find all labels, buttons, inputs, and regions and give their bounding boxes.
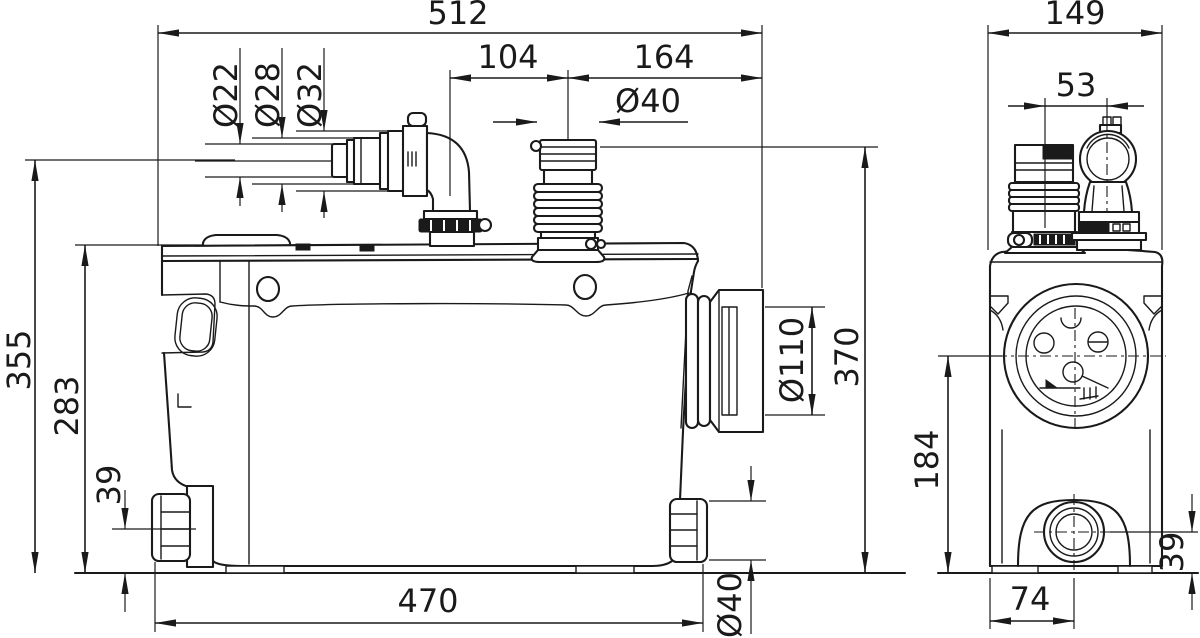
lid-clip [296,244,310,250]
foot [226,566,284,573]
tank-body [162,235,698,573]
dimension-discharge-height: 184 [908,356,1002,573]
dimension-side-port-height: 39 [1110,494,1198,610]
hose-clip [531,141,541,151]
dimension-discharge-diameter: Ø110 [765,307,825,415]
dim-label-inlet-dia-28: Ø28 [249,62,287,128]
dim-label-overall-depth: 149 [1044,0,1105,32]
dimension-outlet-diameter: Ø40 [493,82,688,122]
lid-screw-hole-left [257,277,279,301]
side-view: 149 53 184 39 74 [908,0,1198,629]
lid-screw-hole-right [574,275,596,299]
front-view: 512 104 164 Ø40 Ø22 [0,0,905,638]
dim-label-inlet-dia-32: Ø32 [291,62,329,128]
elbow-top-nub [408,113,426,126]
side-inlet-right [670,499,707,562]
dim-label-left-port-height: 39 [90,465,128,506]
discharge-flange-face [996,284,1166,428]
lid-clip [360,245,374,251]
technical-drawing-page: 512 104 164 Ø40 Ø22 [0,0,1200,638]
dim-label-discharge-diameter: Ø110 [773,317,811,403]
dim-label-port-offset: 74 [1010,580,1051,618]
dim-label-base-length: 470 [397,582,458,620]
inlet-elbow-side [1072,117,1146,250]
pump-dimension-drawing: 512 104 164 Ø40 Ø22 [0,0,1200,638]
mold-mark [178,394,191,407]
dim-label-inlet-offset: 104 [477,38,538,76]
dim-label-inlet-dia-22: Ø22 [207,62,245,128]
foot [576,566,634,573]
outlet-pipe-assembly [531,140,605,262]
lid-seam [220,293,689,317]
elbow-body [427,133,470,211]
dim-label-outlet-offset: 164 [633,38,694,76]
dim-label-overall-height: 370 [828,326,866,387]
discharge-connector [686,290,763,432]
dimension-right-port-diameter: Ø40 [709,466,766,638]
foot [1118,566,1152,573]
dim-label-overall-width: 512 [427,0,488,32]
dimension-port-spacing: 53 [1008,66,1144,143]
dimension-inlet-dia-32: Ø32 [291,48,392,218]
foot [992,566,1038,573]
side-inlet-left [152,486,213,567]
dim-label-inlet-height: 355 [0,329,38,390]
dim-label-outlet-diameter: Ø40 [615,82,681,120]
elbow-nut [419,219,482,232]
inspection-cap [203,235,290,245]
dim-label-side-port-height: 39 [1153,532,1191,573]
dim-label-port-spacing: 53 [1056,66,1097,104]
dim-label-tank-height: 283 [48,375,86,436]
dim-label-discharge-height: 184 [908,429,946,490]
dimension-port-offset: 74 [990,578,1074,629]
dim-label-right-port-diameter: Ø40 [711,572,749,638]
